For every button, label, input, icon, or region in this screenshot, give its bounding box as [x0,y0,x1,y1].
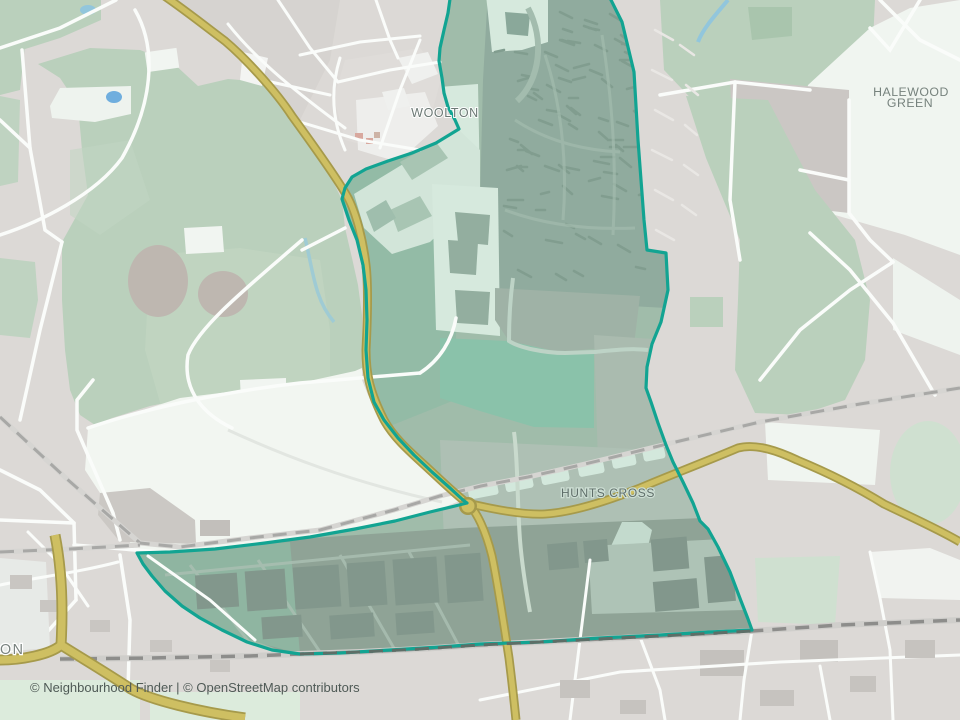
svg-text:GREEN: GREEN [887,96,933,110]
svg-text:ON: ON [0,642,24,658]
svg-text:HUNTS CROSS: HUNTS CROSS [561,486,655,500]
svg-text:© Neighbourhood Finder | © Ope: © Neighbourhood Finder | © OpenStreetMap… [30,680,360,695]
svg-text:WOOLTON: WOOLTON [411,106,479,120]
